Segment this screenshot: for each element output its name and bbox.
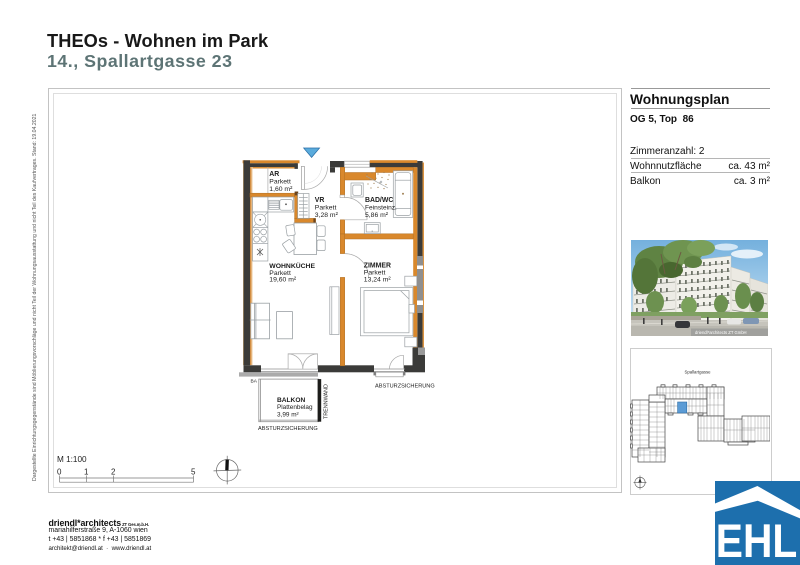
- svg-text:BA: BA: [251, 378, 258, 384]
- svg-text:Parkett: Parkett: [364, 270, 386, 277]
- svg-text:TRENNWAND: TRENNWAND: [324, 384, 330, 419]
- svg-text:Parkett: Parkett: [269, 179, 291, 186]
- svg-text:driendl*architects ZT GmbH: driendl*architects ZT GmbH: [695, 330, 747, 335]
- svg-text:EHL: EHL: [716, 514, 798, 565]
- svg-text:BALKON: BALKON: [277, 397, 305, 404]
- svg-text:Parkett: Parkett: [315, 204, 337, 211]
- svg-text:Feinsteinz.: Feinsteinz.: [365, 205, 397, 212]
- svg-text:13,24 m²: 13,24 m²: [364, 277, 392, 284]
- svg-text:2: 2: [111, 467, 116, 476]
- svg-text:ABSTURZSICHERUNG: ABSTURZSICHERUNG: [375, 384, 435, 390]
- svg-text:5,86 m²: 5,86 m²: [365, 212, 389, 219]
- svg-text:VR: VR: [315, 197, 325, 204]
- svg-text:3,99 m²: 3,99 m²: [277, 411, 299, 418]
- svg-text:Spallartgasse: Spallartgasse: [685, 369, 712, 374]
- svg-text:5: 5: [191, 467, 196, 476]
- svg-text:19,60 m²: 19,60 m²: [269, 277, 297, 284]
- svg-text:0: 0: [57, 467, 62, 476]
- svg-text:Plattenbelag: Plattenbelag: [277, 404, 313, 411]
- svg-text:ABSTURZSICHERUNG: ABSTURZSICHERUNG: [258, 426, 318, 432]
- svg-text:M 1:100: M 1:100: [57, 455, 87, 464]
- svg-text:WOHNKÜCHE: WOHNKÜCHE: [269, 261, 315, 270]
- svg-text:1: 1: [84, 467, 89, 476]
- svg-text:ZIMMER: ZIMMER: [364, 262, 391, 269]
- svg-text:BAD/WC: BAD/WC: [365, 197, 393, 204]
- svg-text:AR: AR: [269, 171, 279, 178]
- svg-text:1,60 m²: 1,60 m²: [269, 186, 293, 193]
- svg-text:3,28 m²: 3,28 m²: [315, 212, 339, 219]
